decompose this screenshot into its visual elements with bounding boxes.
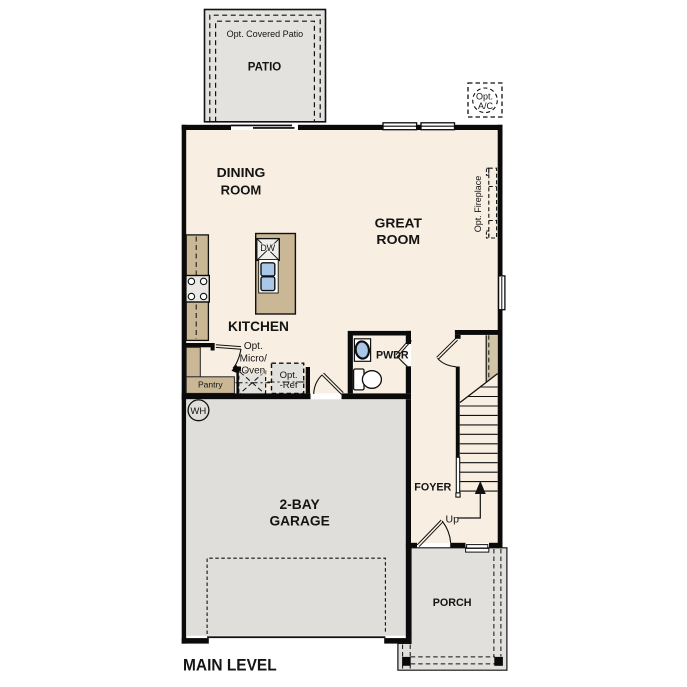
- svg-text:A/C: A/C: [478, 101, 494, 111]
- svg-text:Oven: Oven: [241, 366, 265, 377]
- svg-text:DW: DW: [260, 243, 275, 253]
- svg-text:Micro/: Micro/: [240, 353, 267, 364]
- svg-text:FOYER: FOYER: [414, 481, 451, 493]
- svg-text:GARAGE: GARAGE: [269, 513, 329, 529]
- svg-text:Pantry: Pantry: [198, 379, 223, 389]
- svg-text:PATIO: PATIO: [248, 62, 281, 74]
- svg-text:Opt.: Opt.: [244, 341, 263, 352]
- svg-text:GREAT: GREAT: [375, 216, 422, 231]
- svg-text:ROOM: ROOM: [221, 182, 262, 197]
- svg-text:Up: Up: [446, 514, 460, 526]
- svg-text:DINING: DINING: [217, 165, 266, 180]
- svg-text:ROOM: ROOM: [376, 232, 420, 247]
- svg-text:WH: WH: [190, 406, 206, 417]
- svg-text:-Ref: -Ref: [280, 380, 298, 391]
- svg-text:PWDR: PWDR: [376, 350, 409, 362]
- svg-text:MAIN LEVEL: MAIN LEVEL: [183, 657, 277, 675]
- svg-text:Opt. Covered Patio: Opt. Covered Patio: [227, 29, 304, 39]
- svg-text:PORCH: PORCH: [433, 597, 472, 609]
- svg-text:KITCHEN: KITCHEN: [228, 319, 289, 334]
- svg-text:2-BAY: 2-BAY: [280, 496, 321, 512]
- svg-text:Opt.: Opt.: [476, 91, 493, 101]
- svg-text:Opt. Fireplace: Opt. Fireplace: [473, 176, 483, 233]
